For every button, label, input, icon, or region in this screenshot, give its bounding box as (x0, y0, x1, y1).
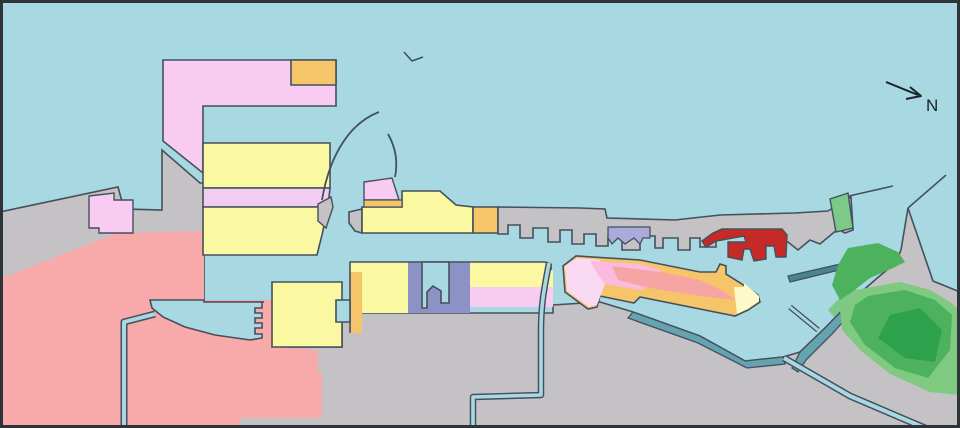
zone-orange-strip (350, 272, 362, 333)
zone-yellow-east (470, 262, 553, 287)
central-pier-pink-block (364, 178, 399, 200)
orange-terminal (291, 60, 336, 85)
central-pier-orange-strip (364, 200, 402, 207)
left-pier-pink-band (203, 188, 330, 207)
south-yellow-pier (272, 282, 342, 347)
central-pier-orange-end (473, 207, 498, 233)
slip-water (336, 300, 350, 322)
left-pier-yellow-south (203, 207, 328, 255)
harbor-map: N (0, 0, 960, 428)
left-pier-yellow-north (203, 143, 330, 188)
harbor-map-canvas: N (0, 0, 960, 428)
compass-label: N (926, 96, 938, 115)
